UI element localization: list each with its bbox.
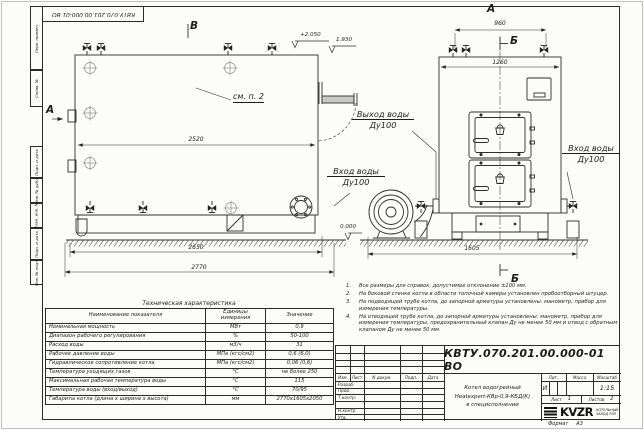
lifting-point-icons [83,61,239,216]
section-b-bottom-mark [500,264,508,276]
boiler-side-view [52,24,357,277]
table-row: Диапазон рабочего регулирования%50-100 [46,332,334,341]
margin-cell: Справ. № [30,70,43,107]
view-label-a-side: А [46,104,54,116]
water-outlet-label: Выход воды Ду100 [352,109,414,131]
elevation-mark-ground [345,233,362,240]
note-item: 2.На боковой стенке котла в области топо… [346,291,618,298]
spec-table-title: Техническая характеристика [45,300,333,307]
scale-value: 1:15 [593,381,621,395]
company-logo: KVZR КОТЕЛЬНЫЙ ЗАВОД РЭП [541,403,621,421]
ash-door [227,215,243,231]
rev-col-header: Лист [350,373,364,381]
dim-1260: 1260 [492,59,507,66]
margin-cell: Взам. инв. № [30,203,43,228]
notes-list: 1.Все размеры для справок, допустимое от… [346,283,618,335]
rev-col-header: Изм. [336,373,350,381]
dim-1605: 1605 [464,245,479,252]
lit-value: И [541,381,549,395]
note-item: 3.На подводящей трубе котла, до запорной… [346,299,618,312]
note-item: 1.Все размеры для справок, допустимое от… [346,283,618,290]
table-row: Расход водым3/ч31 [46,341,334,350]
see-note-callout: см. п. 2 [233,92,264,103]
section-label-b-top: Б [510,35,518,47]
company-name: КОТЕЛЬНЫЙ ЗАВОД РЭП [596,408,618,417]
view-label-b: В [190,20,198,32]
spec-header-row: Наименование показателя Единицы измерени… [46,309,334,324]
dim-960: 960 [494,20,505,27]
note-item: 4.На отводящей трубе котла, до запорной … [346,314,618,334]
product-title: Котел водогрейный Heatexpert-КВр-0,9-КБД… [444,373,541,421]
elevation-outlet: 1.930 [336,37,352,43]
front-top-valves [449,46,548,58]
rev-col-header: Подп. [400,373,422,381]
table-row: Температура воды (вход/выход)°С70/95 [46,386,334,395]
table-row: Габариты котла (длина х ширина х высота)… [46,395,334,404]
stamp-doc-number: КВТУ.070.201.00.000-01 ВО [52,11,135,17]
drain-valves [86,201,216,213]
side-flange [561,199,567,213]
inlet-valve-right [567,202,579,239]
kvzr-logo-text: KVZR [560,405,593,419]
table-row: Гидравлическое сопротивление котлаМПа (к… [46,359,334,368]
elevation-mark-outlet [329,46,356,53]
elevation-ground: 0.000 [340,224,356,230]
boiler-front-view [334,30,588,276]
doc-number: КВТУ.070.201.00.000-01 ВО [444,346,621,373]
door-handle [474,139,489,143]
margin-cell: Инв. № подл. [30,260,43,285]
elevation-top: +2.050 [300,32,321,38]
rev-col-header: Дата [422,373,444,381]
door-handle [474,187,489,191]
air-vent-valves [83,44,276,56]
lit-header: Лит. [541,373,566,381]
side-flange [433,199,439,213]
spec-table: Наименование показателя Единицы измерени… [45,308,334,405]
sig-row-label: Пров. [336,388,364,395]
title-block: КВТУ.070.201.00.000-01 ВО Изм. Лист N до… [335,345,620,420]
callout-leader [196,88,231,100]
sig-row-label: Н.контр. [336,408,364,415]
kvzr-logo-icon [544,407,557,418]
outlet-leader [412,131,436,199]
inlet-left-leader [334,193,350,206]
margin-cell: Инв. № дубл. [30,178,43,203]
upper-door [469,112,535,158]
control-panel [527,78,551,100]
rev-col-header: N докум. [364,373,400,381]
table-row: Рабочее давление водыМПа (кгс/см2)0,6 (6… [46,350,334,359]
view-label-a-front: А [487,3,495,15]
dim-2520: 2520 [188,136,203,143]
table-row: Максимальная рабочая температура воды°С1… [46,377,334,386]
table-row: Температура уходящих газов°Сне более 250 [46,368,334,377]
section-b-top-mark [500,37,508,50]
dim-2770: 2770 [191,264,206,271]
ground-hatch-left [66,241,346,247]
format-label: Формат А3 [548,421,583,427]
sig-row-label: Т.контр. [336,394,364,401]
drawing-sheet: КВТУ.070.201.00.000-01 ВО Перв. примен. … [0,0,644,430]
inlet-right-leader [567,172,573,199]
top-left-stamp: КВТУ.070.201.00.000-01 ВО [42,6,144,22]
elevation-mark-top [292,41,329,48]
margin-cell: Перв. примен. [30,6,43,70]
water-inlet-left-label: Вход воды Ду100 [327,166,385,188]
margin-cell: Подп. и дата [30,146,43,178]
dim-2650: 2650 [188,244,203,251]
mass-header: Масса [566,373,593,381]
water-inlet-right-label: Вход воды Ду100 [562,143,620,165]
lower-door [469,160,535,207]
table-row: Номинальная мощностьМВт0,9 [46,323,334,332]
margin-cell: Подп. и дата [30,228,43,260]
blower-fan [369,190,433,238]
scale-header: Масштаб [593,373,621,381]
sig-row-label: Утв. [336,414,364,421]
sheet-number-cell: Лист1 [541,395,581,403]
sig-row-label: Разраб. [336,381,364,388]
sheets-total-cell: Листов2 [581,395,621,403]
